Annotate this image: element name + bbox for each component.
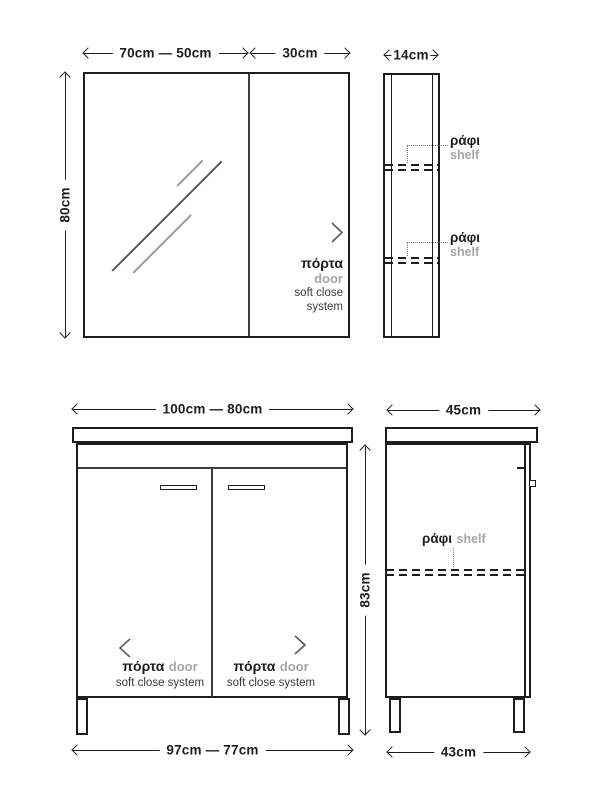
- arrowhead-right-icon: [519, 746, 530, 757]
- mirror-side-inner-wall-line: [391, 75, 392, 336]
- door-label-english: door: [169, 659, 198, 674]
- door-label-greek: πόρτα: [233, 658, 275, 674]
- furniture-dimension-diagram: 70cm — 50cm 30cm 80cm πόρτα door soft cl…: [0, 0, 600, 800]
- shelf-label-greek: ράφι: [450, 133, 480, 148]
- dimension-label: 83cm: [358, 564, 373, 615]
- dimension-label: 45cm: [439, 403, 488, 418]
- shelf-dashed-line: [385, 262, 439, 264]
- vanity-countertop-front: [72, 427, 353, 443]
- arrowhead-left-icon: [249, 47, 260, 58]
- dimension-label: 30cm: [275, 46, 324, 61]
- shelf-label-greek: ράφι: [450, 230, 480, 245]
- vanity-leg: [338, 698, 350, 735]
- door-handle: [228, 485, 265, 490]
- shelf-label: ράφι shelf: [422, 531, 486, 548]
- dimension-mirror-side-width: 30cm: [250, 46, 350, 60]
- shelf-label: ράφι shelf: [450, 133, 480, 162]
- shelf-leader-line: [407, 242, 448, 243]
- arrowhead-right-icon: [529, 404, 540, 415]
- arrowhead-up-icon: [59, 71, 70, 82]
- dimension-vanity-width-bottom: 97cm — 77cm: [72, 743, 353, 757]
- arrowhead-right-icon: [237, 47, 248, 58]
- shelf-dashed-line: [385, 257, 439, 259]
- arrowhead-left-icon: [82, 47, 93, 58]
- shelf-label-english: shelf: [450, 148, 480, 162]
- arrowhead-up-icon: [359, 444, 370, 455]
- vanity-countertop-side: [385, 427, 538, 443]
- vanity-leg: [76, 698, 88, 735]
- door-feature: soft close system: [201, 676, 341, 690]
- dimension-mirror-height: 80cm: [58, 72, 72, 338]
- dimension-vanity-height: 83cm: [358, 445, 372, 735]
- dimension-label: 97cm — 77cm: [159, 743, 265, 758]
- shelf-label: ράφι shelf: [450, 230, 480, 259]
- dimension-label: 70cm — 50cm: [112, 46, 218, 61]
- dimension-mirror-door-width: 70cm — 50cm: [83, 46, 248, 60]
- chevron-left-icon: [117, 637, 133, 659]
- dimension-vanity-width-top: 100cm — 80cm: [72, 402, 353, 416]
- shelf-leader-line: [453, 548, 454, 567]
- door-feature-line2: system: [238, 300, 343, 314]
- vanity-leg: [513, 698, 525, 733]
- shelf-leader-line: [407, 145, 448, 146]
- vanity-right-door-label: πόρτα door soft close system: [201, 658, 341, 690]
- door-label-line: πόρτα door: [201, 658, 341, 676]
- dimension-label: 14cm: [391, 48, 430, 63]
- dimension-label: 43cm: [434, 745, 483, 760]
- vanity-leg: [389, 698, 401, 733]
- shelf-dashed-line: [386, 574, 529, 576]
- arrowhead-right-icon: [342, 403, 353, 414]
- arrowhead-left-icon: [71, 744, 82, 755]
- shelf-leader-line: [407, 243, 408, 256]
- dimension-label: 80cm: [58, 179, 73, 230]
- chevron-right-icon: [329, 221, 345, 244]
- shelf-label-english: shelf: [457, 532, 486, 546]
- arrowhead-left-icon: [386, 404, 397, 415]
- arrowhead-right-icon: [339, 47, 350, 58]
- vanity-side-apron-tick: [517, 467, 524, 469]
- door-label-english: door: [280, 659, 309, 674]
- arrowhead-down-icon: [359, 724, 370, 735]
- shelf-leader-line: [407, 146, 408, 163]
- door-label-greek: πόρτα: [122, 658, 164, 674]
- shelf-dashed-line: [385, 164, 439, 166]
- dimension-label: 100cm — 80cm: [156, 402, 270, 417]
- arrowhead-left-icon: [386, 746, 397, 757]
- mirror-door-label: πόρτα door soft close system: [238, 256, 343, 314]
- shelf-dashed-line: [386, 569, 529, 571]
- shelf-dashed-line: [385, 169, 439, 171]
- arrowhead-left-icon: [71, 403, 82, 414]
- door-label-english: door: [238, 272, 343, 287]
- shelf-label-english: shelf: [450, 245, 480, 259]
- door-label-greek: πόρτα: [238, 256, 343, 272]
- door-handle: [160, 485, 197, 490]
- mirror-side-inner-wall-line: [432, 75, 433, 336]
- chevron-right-icon: [292, 634, 308, 656]
- door-handle-side: [529, 480, 536, 487]
- shelf-label-greek: ράφι: [422, 531, 452, 546]
- dimension-vanity-depth-top: 45cm: [387, 403, 540, 417]
- dimension-mirror-depth: 14cm: [384, 48, 438, 62]
- arrowhead-right-icon: [342, 744, 353, 755]
- arrowhead-down-icon: [59, 327, 70, 338]
- door-feature-line1: soft close: [238, 286, 343, 300]
- dimension-vanity-depth-bottom: 43cm: [387, 745, 530, 759]
